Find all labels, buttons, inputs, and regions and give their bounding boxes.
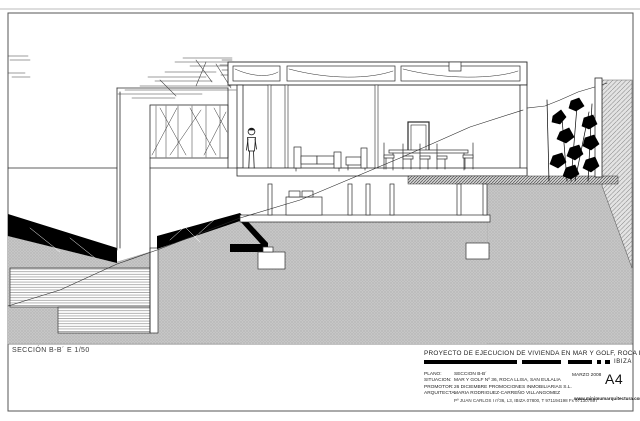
- architectural-sheet: SECCIÓN B-B´ E 1/50 PROYECTO DE EJECUCIO…: [0, 0, 640, 421]
- field-arquitecta: ARQUITECTA: MARIA RODRIGUEZ-CARREÑO VILL…: [424, 391, 574, 397]
- title-divider-bars: IBIZA: [424, 359, 632, 364]
- tree-silhouette: [547, 98, 599, 181]
- lower-level: [240, 184, 490, 222]
- project-title: PROYECTO DE EJECUCION DE VIVIENDA EN MAR…: [424, 350, 632, 357]
- field-label: ARQUITECTA:: [424, 391, 454, 397]
- sheet-date: MARZO 2008: [572, 373, 601, 378]
- tree-sketch: [8, 56, 236, 98]
- drawing-caption: SECCIÓN B-B´ E 1/50: [12, 347, 90, 354]
- location-label: IBIZA: [614, 359, 632, 365]
- divider-bar: [605, 360, 610, 364]
- divider-bar: [424, 360, 517, 364]
- title-block: PROYECTO DE EJECUCION DE VIVIENDA EN MAR…: [424, 350, 632, 410]
- divider-bar: [522, 360, 561, 364]
- website-url: www.minimumarquitectura.com: [574, 396, 640, 401]
- title-fields: PLANO: SECCION B-B´ SITUACION: MAR Y GOL…: [424, 372, 574, 398]
- person-figure: [247, 128, 257, 168]
- walls-columns: [237, 85, 527, 175]
- armchair: [346, 148, 367, 170]
- sheet-size: A4: [605, 371, 623, 387]
- field-value: MARIA RODRIGUEZ-CARREÑO VILLANGOMEZ: [454, 391, 574, 397]
- roof-slab: [228, 62, 527, 85]
- floor-slab: [237, 168, 527, 176]
- divider-bar: [568, 360, 592, 364]
- sofa: [294, 147, 341, 171]
- door-frame: [408, 122, 429, 152]
- shrub-sketch: [152, 106, 227, 157]
- furniture: [294, 122, 473, 171]
- divider-bar: [597, 360, 602, 364]
- terrace-paving: [408, 176, 618, 184]
